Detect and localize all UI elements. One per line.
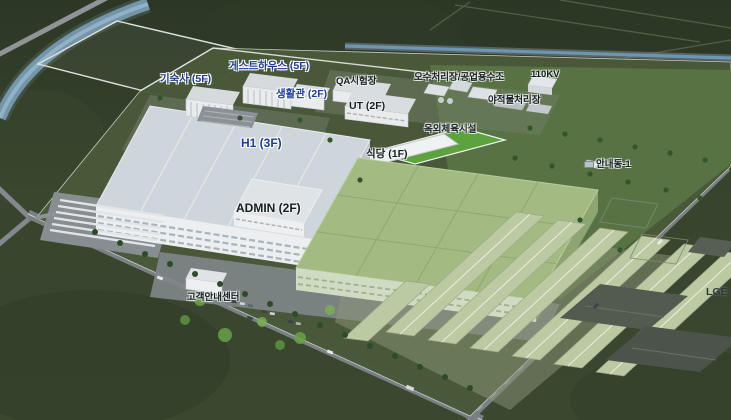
site-rendering-canvas xyxy=(0,0,731,420)
aerial-site-plan: 게스트하우스 (5F) 기숙사 (5F) 생활관 (2F) QA시험장 오수처리… xyxy=(0,0,731,420)
living-hall-building xyxy=(291,84,330,110)
guesthouse-building xyxy=(243,73,298,109)
